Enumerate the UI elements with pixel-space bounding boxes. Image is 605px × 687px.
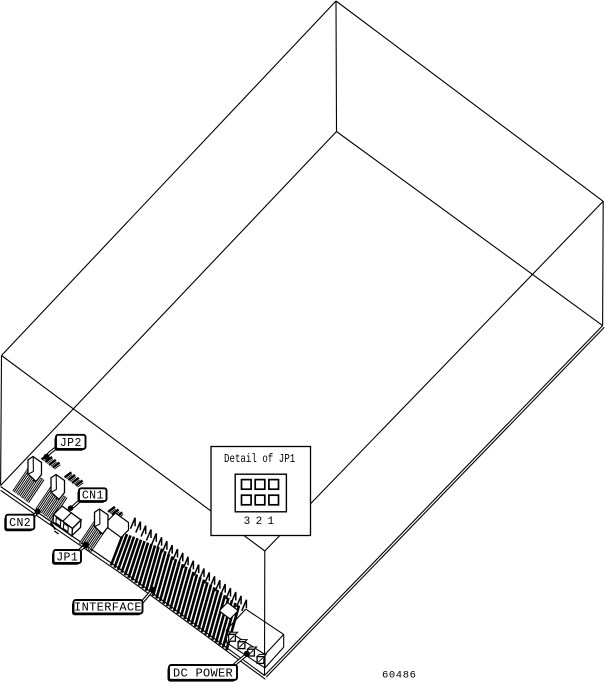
svg-text:3: 3 [244, 516, 251, 528]
svg-text:JP1: JP1 [56, 551, 78, 564]
svg-text:CN1: CN1 [82, 490, 104, 503]
svg-text:60486: 60486 [382, 670, 417, 682]
svg-text:Detail of JP1: Detail of JP1 [224, 452, 295, 466]
svg-text:1: 1 [267, 516, 274, 528]
svg-text:CN2: CN2 [9, 517, 31, 530]
svg-text:JP2: JP2 [60, 437, 82, 450]
svg-text:DC POWER: DC POWER [173, 666, 233, 680]
svg-text:INTERFACE: INTERFACE [74, 601, 142, 615]
svg-text:2: 2 [256, 516, 263, 528]
